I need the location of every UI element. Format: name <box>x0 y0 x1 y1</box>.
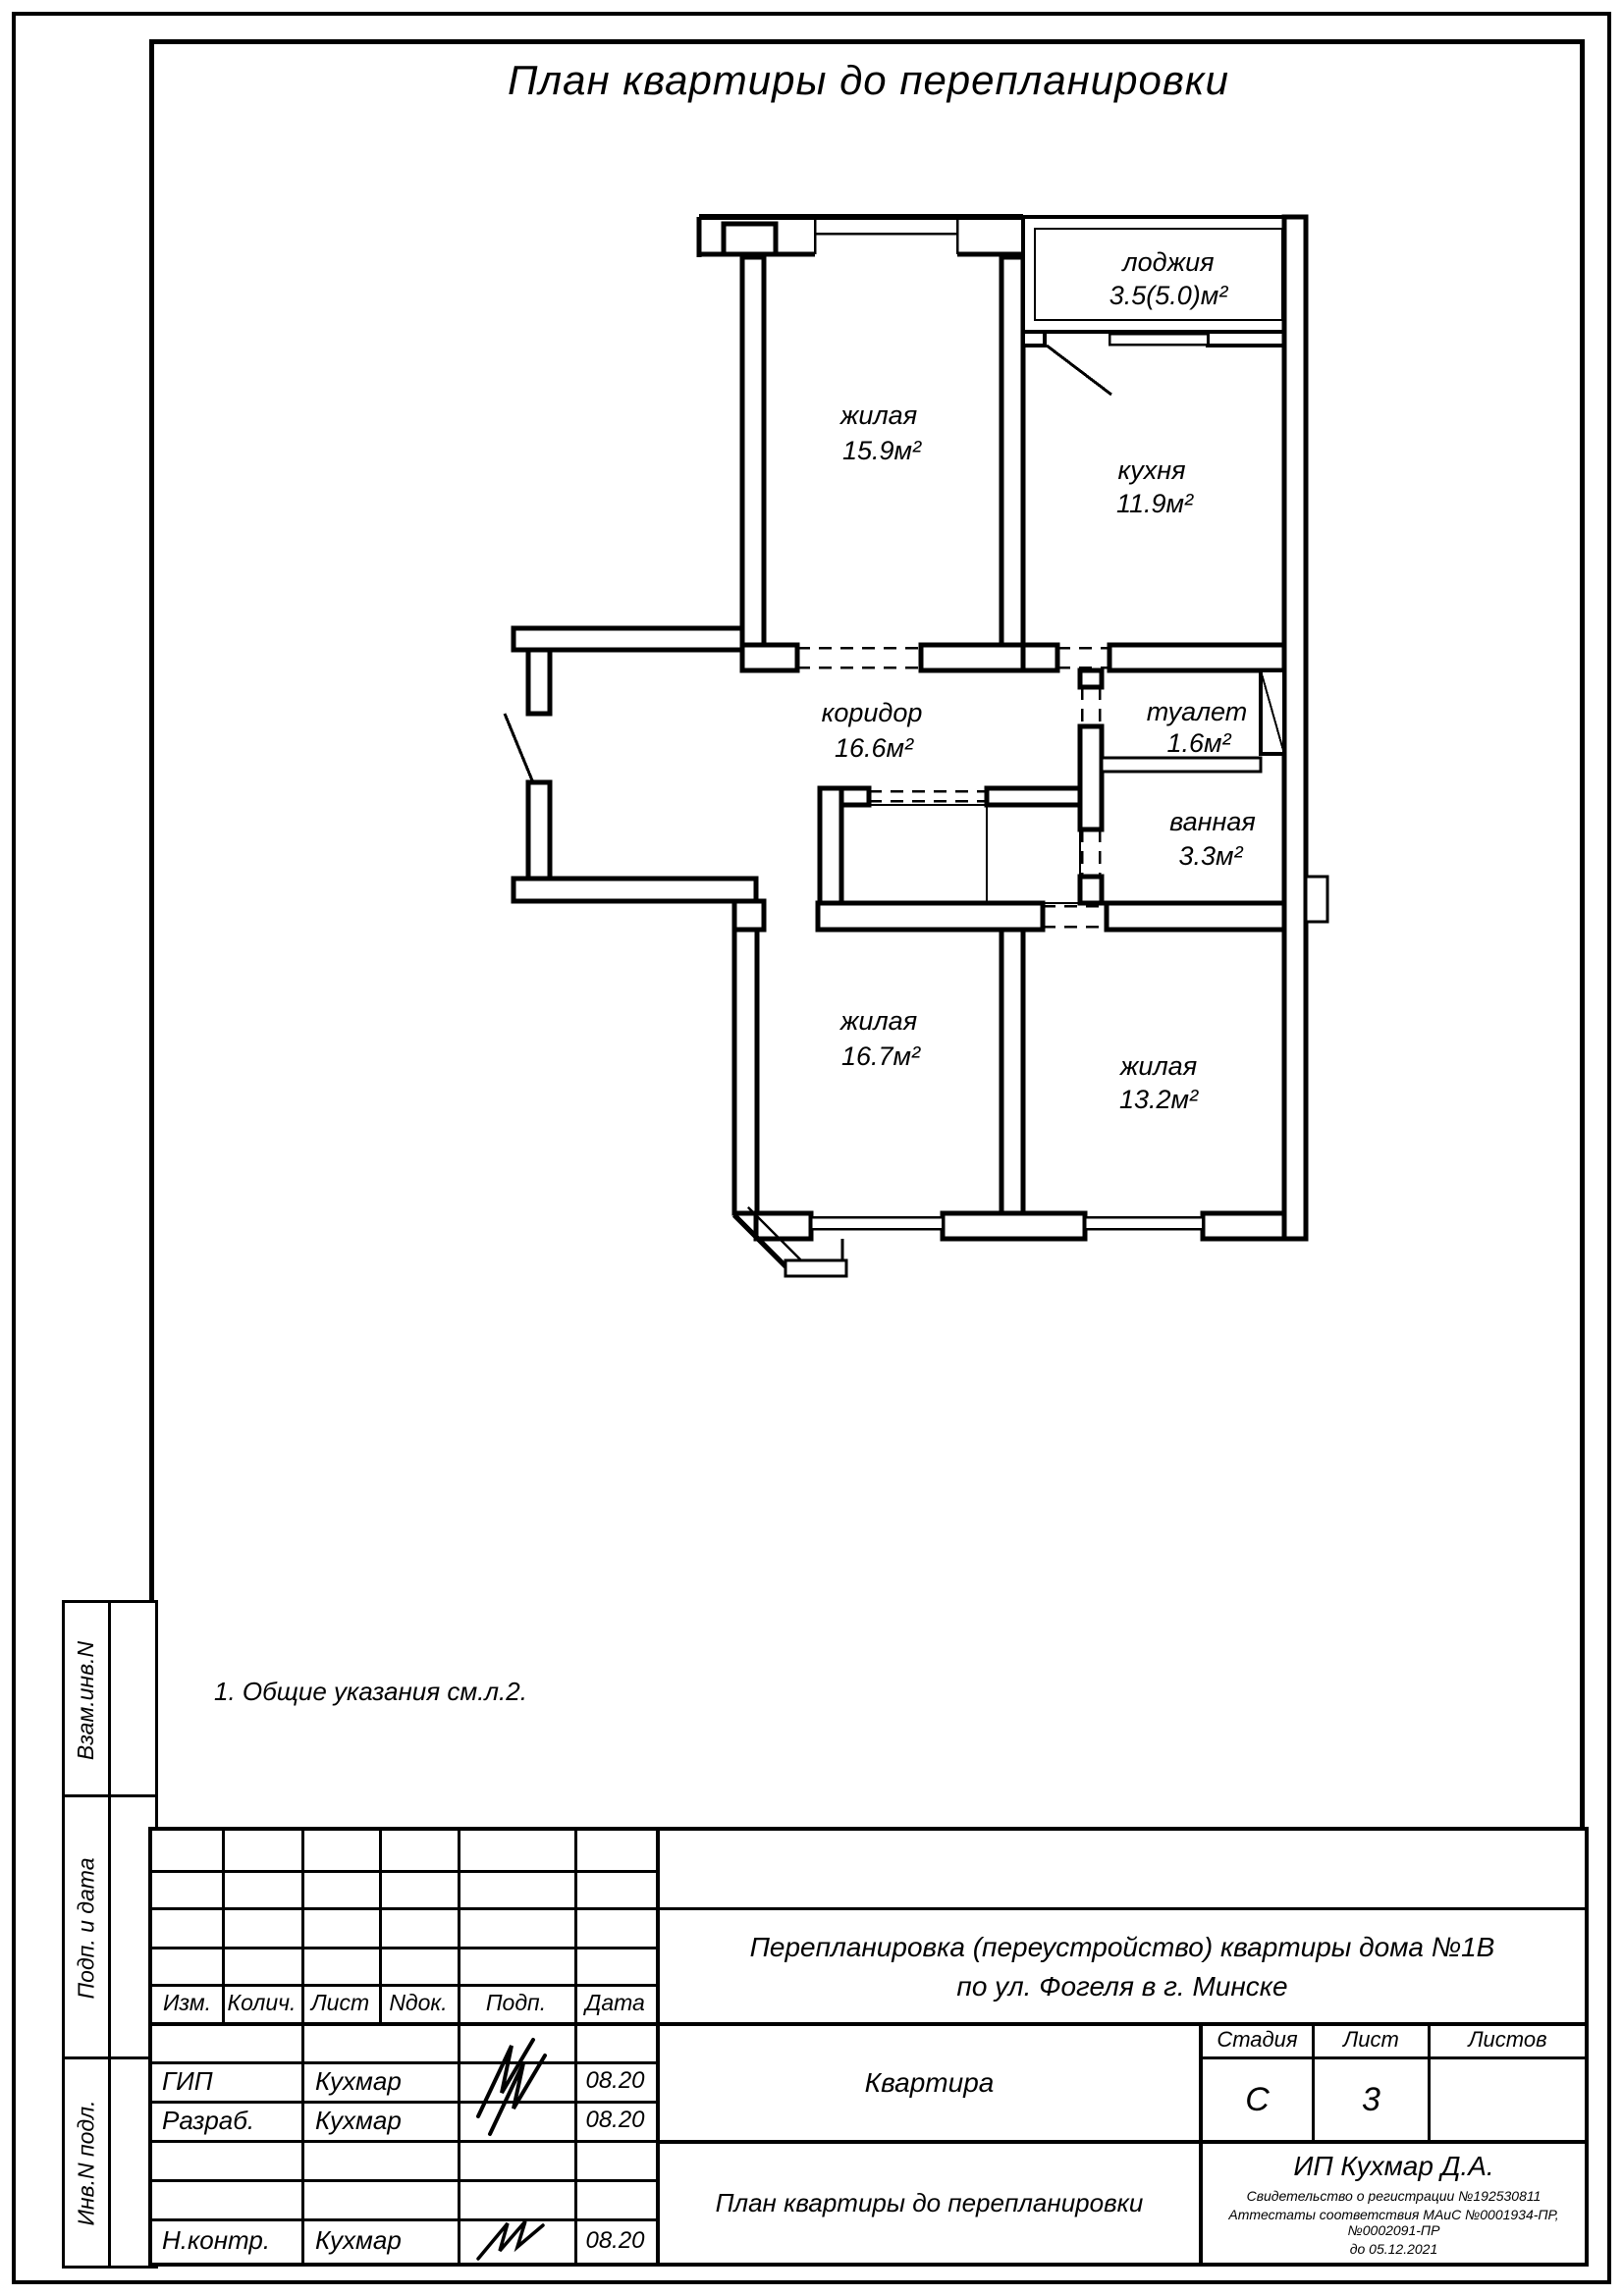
project-line1: Перепланировка (переустройство) квартиры… <box>750 1932 1495 1963</box>
stage-value: С <box>1203 2059 1312 2140</box>
corridor-walls <box>514 628 1080 930</box>
opening-kitchen <box>1057 648 1109 667</box>
organization-cell: ИП Кухмар Д.А. Свидетельство о регистрац… <box>1203 2144 1585 2263</box>
opening-room-13-2 <box>1043 906 1107 927</box>
sheets-label: Листов <box>1431 2022 1585 2056</box>
sheet-title-cell: План квартиры до перепланировки <box>660 2144 1199 2263</box>
room-15-9-area: 15.9м² <box>842 436 922 465</box>
sheet-label: Лист <box>1315 2022 1428 2056</box>
row-gip-date: 08.20 <box>574 2061 656 2101</box>
room-16-7-area: 16.7м² <box>841 1041 921 1071</box>
margin-cell-vzam: Взам.инв.N <box>62 1600 158 1800</box>
sheets-value <box>1431 2059 1585 2140</box>
col-izm: Изм. <box>152 1984 222 2022</box>
row-nkontr-name: Кухмар <box>315 2218 456 2263</box>
kitchen-area: 11.9м² <box>1116 489 1194 518</box>
row-razrab-name: Кухмар <box>315 2101 456 2140</box>
signature-gip-razrab <box>464 2032 572 2142</box>
stage-label: Стадия <box>1203 2022 1312 2056</box>
door-entry <box>505 714 532 780</box>
row-nkontr-date: 08.20 <box>574 2218 656 2263</box>
sheet-value: 3 <box>1315 2059 1428 2140</box>
opening-room-15-9 <box>797 648 921 667</box>
window-room-16-7 <box>811 1217 943 1229</box>
object-name-cell: Квартира <box>660 2026 1199 2140</box>
margin-label-wrap: Взам.инв.N <box>63 1603 110 1797</box>
corridor-area: 16.6м² <box>835 733 914 763</box>
door-loggia <box>1047 346 1111 395</box>
drawing-sheet: План квартиры до перепланировки <box>0 0 1623 2296</box>
col-kolich: Колич. <box>222 1984 301 2022</box>
margin-label-wrap: Подп. и дата <box>63 1797 110 2059</box>
margin-cell-inv: Инв.N подл. <box>62 2056 158 2269</box>
opening-closet <box>869 791 987 801</box>
window-kitchen <box>1109 334 1208 345</box>
door-wc <box>1082 687 1100 726</box>
loggia-label: лоджия <box>1120 247 1214 277</box>
margin-label-wrap: Инв.N подл. <box>63 2059 110 2266</box>
col-podp: Подп. <box>458 1984 574 2022</box>
org-name: ИП Кухмар Д.А. <box>1293 2151 1493 2182</box>
margin-cell-podp: Подп. и дата <box>62 1794 158 2062</box>
col-ndok: Nдок. <box>379 1984 458 2022</box>
bath-label: ванная <box>1169 807 1256 836</box>
signature-nkontr <box>464 2216 572 2265</box>
closet-walls <box>841 805 1080 903</box>
margin-label-inv: Инв.N подл. <box>74 2100 100 2225</box>
window-room-15-9 <box>815 217 957 254</box>
room-15-9-label: жилая <box>839 400 917 430</box>
margin-label-podp: Подп. и дата <box>74 1858 100 2000</box>
wc-area: 1.6м² <box>1166 728 1231 758</box>
door-bath <box>1082 829 1100 877</box>
room-16-7-walls <box>734 930 1023 1213</box>
floor-plan: жилая 15.9м² лоджия 3.5(5.0)м² кухня 11.… <box>0 0 1623 1374</box>
row-gip-role: ГИП <box>162 2061 299 2101</box>
project-name-cell: Перепланировка (переустройство) квартиры… <box>660 1911 1585 2022</box>
col-list: Лист <box>301 1984 379 2022</box>
wc-label: туалет <box>1147 697 1248 726</box>
kitchen-label: кухня <box>1117 455 1185 485</box>
row-razrab-date: 08.20 <box>574 2101 656 2140</box>
margin-label-vzam: Взам.инв.N <box>74 1640 100 1759</box>
row-gip-name: Кухмар <box>315 2061 456 2101</box>
window-room-13-2 <box>1085 1217 1203 1229</box>
room-labels: жилая 15.9м² лоджия 3.5(5.0)м² кухня 11.… <box>822 247 1256 1114</box>
bath-area: 3.3м² <box>1178 841 1243 871</box>
org-cert: Свидетельство о регистрации №192530811 <box>1247 2188 1542 2204</box>
room-13-2-label: жилая <box>1119 1051 1197 1081</box>
loggia-area: 3.5(5.0)м² <box>1109 281 1229 310</box>
org-until: до 05.12.2021 <box>1350 2241 1437 2257</box>
corridor-label: коридор <box>822 698 923 727</box>
row-razrab-role: Разраб. <box>162 2101 299 2140</box>
title-block: Изм. Колич. Лист Nдок. Подп. Дата ГИП Ку… <box>148 1827 1589 2267</box>
org-attest: Аттестаты соответствия МАиС №0001934-ПР,… <box>1203 2207 1585 2238</box>
project-line2: по ул. Фогеля в г. Минске <box>956 1971 1287 2002</box>
room-16-7-label: жилая <box>839 1006 917 1036</box>
general-note: 1. Общие указания см.л.2. <box>214 1677 527 1707</box>
row-nkontr-role: Н.контр. <box>162 2218 299 2263</box>
col-data: Дата <box>574 1984 656 2022</box>
room-13-2-area: 13.2м² <box>1119 1085 1199 1114</box>
